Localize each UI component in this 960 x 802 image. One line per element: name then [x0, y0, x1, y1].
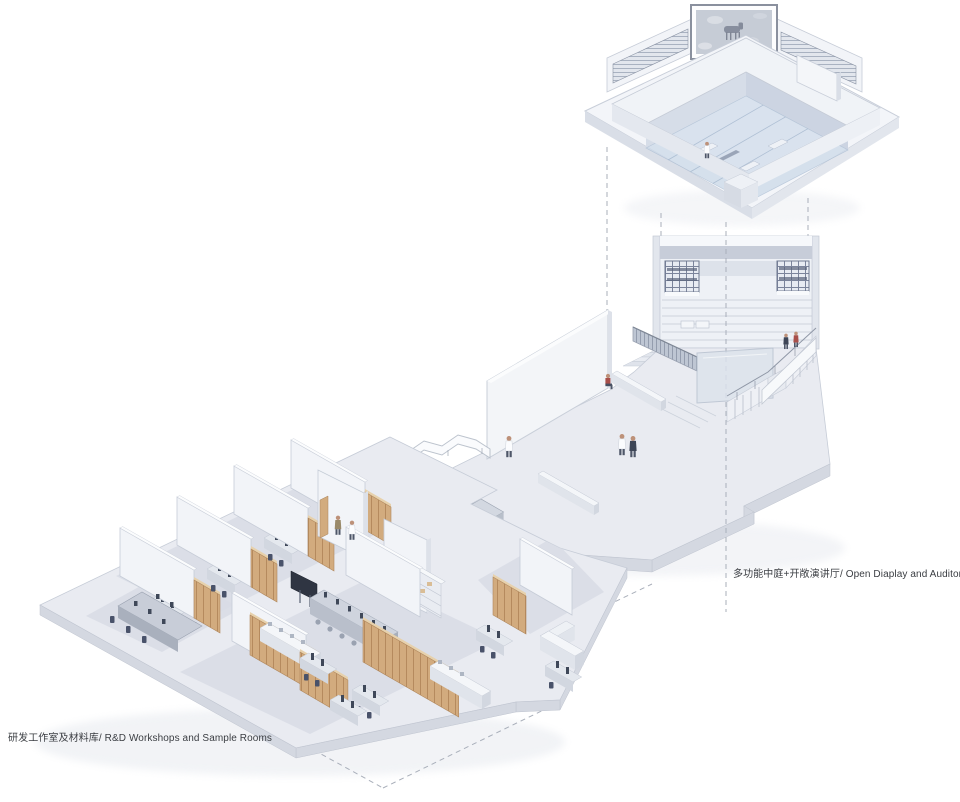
pilaster [653, 236, 660, 349]
pilaster [812, 236, 819, 349]
wood-column [320, 496, 328, 538]
bench [696, 321, 709, 328]
upper-gallery-level [585, 5, 899, 219]
grating-window [665, 261, 699, 296]
bench [681, 321, 694, 328]
axonometric-diagram-page: 多功能中庭+开敞演讲厅/ Open Diaplay and Auditorium… [0, 0, 960, 802]
clerestory-band [660, 246, 812, 259]
grating-window [777, 261, 809, 295]
label-workshops: 研发工作室及材料库/ R&D Workshops and Sample Room… [8, 729, 272, 744]
label-auditorium: 多功能中庭+开敞演讲厅/ Open Diaplay and Auditorium [733, 565, 960, 580]
axonometric-diagram [0, 0, 960, 802]
